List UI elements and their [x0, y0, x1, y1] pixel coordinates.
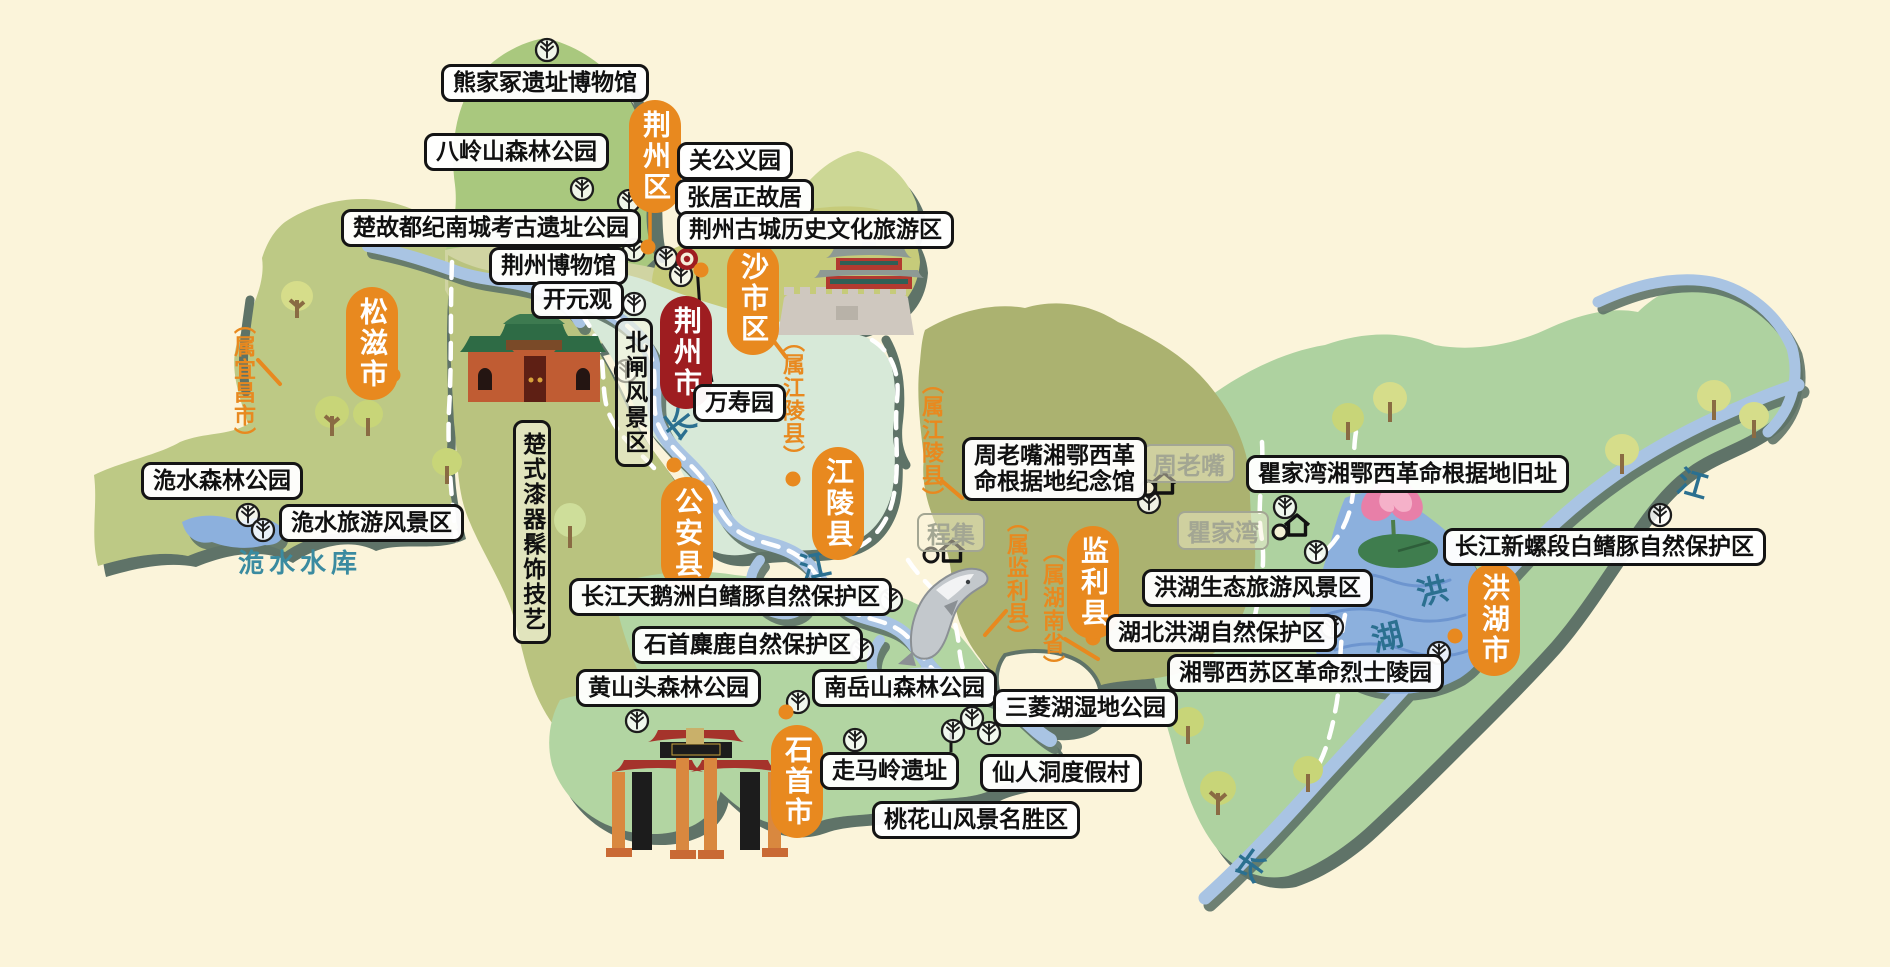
poi-label: 洈水旅游风景区 — [279, 504, 464, 542]
district-badge: 江陵县 — [812, 447, 864, 560]
poi-label: 仙人洞度假村 — [980, 754, 1142, 792]
ownership-note: （属湖南省） — [1036, 540, 1068, 678]
poi-label: 洈水森林公园 — [141, 462, 303, 500]
town-label: 周老嘴 — [1143, 444, 1235, 483]
poi-label: 荆州博物馆 — [489, 247, 628, 285]
city-dot — [1448, 629, 1463, 644]
district-badge: 石首市 — [771, 725, 823, 838]
poi-label: 楚故都纪南城考古遗址公园 — [341, 209, 641, 247]
ownership-note: （属监利县） — [1000, 510, 1032, 648]
poi-label: 湘鄂西苏区革命烈士陵园 — [1167, 654, 1444, 692]
poi-label: 熊家冢遗址博物馆 — [441, 64, 649, 102]
poi-label: 荆州古城历史文化旅游区 — [677, 211, 954, 249]
poi-vertical-label: 楚式漆器髹饰技艺 — [513, 420, 551, 644]
poi-label: 万寿园 — [693, 384, 786, 422]
poi-label: 长江新螺段白鳍豚自然保护区 — [1443, 528, 1766, 566]
water-label: 洈水水库 — [238, 543, 362, 580]
water-label: 洪 — [1411, 563, 1452, 614]
poi-label: 湖北洪湖自然保护区 — [1106, 614, 1337, 652]
jingzhou-tourist-map: 熊家冢遗址博物馆八岭山森林公园关公义园张居正故居荆州古城历史文化旅游区楚故都纪南… — [0, 0, 1890, 967]
district-badge: 荆州区 — [629, 100, 681, 213]
poi-label: 黄山头森林公园 — [576, 669, 761, 707]
city-dot — [641, 240, 656, 255]
poi-label: 石首麋鹿自然保护区 — [632, 626, 863, 664]
district-badge: 沙市区 — [727, 242, 779, 355]
poi-label: 桃花山风景名胜区 — [872, 801, 1080, 839]
poi-label: 周老嘴湘鄂西革 命根据地纪念馆 — [962, 437, 1147, 501]
poi-label: 长江天鹅洲白鳍豚自然保护区 — [569, 578, 892, 616]
poi-label: 走马岭遗址 — [820, 752, 959, 790]
scenic-tree-icon — [842, 727, 869, 754]
city-dot — [779, 705, 794, 720]
scenic-tree-icon — [534, 37, 561, 64]
scenic-tree-icon — [1647, 502, 1674, 529]
ownership-note: （属宜昌市） — [227, 312, 259, 450]
scenic-tree-icon — [624, 708, 651, 735]
district-badge: 公安县 — [661, 477, 713, 590]
poi-label: 南岳山森林公园 — [812, 669, 997, 707]
city-dot — [786, 472, 801, 487]
scenic-tree-icon — [621, 291, 648, 318]
water-label: 江 — [1672, 456, 1714, 508]
ownership-note: （属江陵县） — [915, 372, 947, 510]
city-dot — [667, 458, 682, 473]
district-badge: 洪湖市 — [1468, 563, 1520, 676]
poi-label: 八岭山森林公园 — [424, 133, 609, 171]
water-label: 长 — [1226, 836, 1278, 891]
poi-label: 开元观 — [531, 281, 624, 319]
town-label: 瞿家湾 — [1177, 511, 1269, 550]
district-badge: 松滋市 — [346, 287, 398, 400]
map-labels-layer: 熊家冢遗址博物馆八岭山森林公园关公义园张居正故居荆州古城历史文化旅游区楚故都纪南… — [0, 0, 1890, 967]
city-dot — [694, 263, 709, 278]
poi-vertical-label: 北闸风景区 — [615, 318, 653, 467]
scenic-tree-icon — [569, 176, 596, 203]
town-ring-icon — [1272, 524, 1289, 541]
town-label: 程集 — [917, 513, 985, 552]
scenic-tree-icon — [250, 517, 277, 544]
water-label: 湖 — [1366, 609, 1407, 660]
poi-label: 关公义园 — [677, 142, 793, 180]
poi-label: 瞿家湾湘鄂西革命根据地旧址 — [1246, 455, 1569, 493]
poi-label: 洪湖生态旅游风景区 — [1142, 569, 1373, 607]
poi-label: 三菱湖湿地公园 — [993, 689, 1178, 727]
scenic-tree-icon — [1303, 539, 1330, 566]
